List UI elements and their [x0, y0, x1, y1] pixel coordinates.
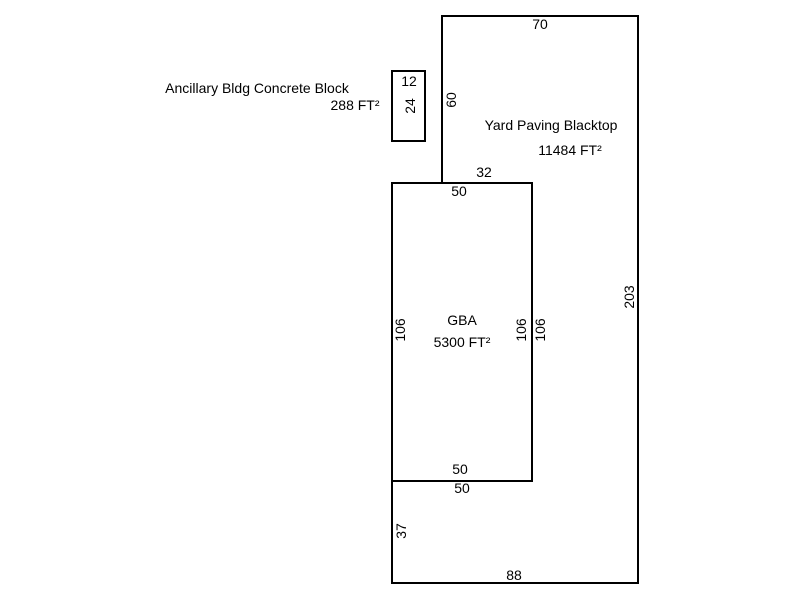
yard-area-label: 11484 FT² — [538, 143, 602, 157]
gba-outline — [392, 183, 532, 481]
sketch-canvas: Ancillary Bldg Concrete Block 288 FT² 12… — [0, 0, 800, 600]
gba-right-dim-label: 106 — [514, 318, 528, 341]
yard-top-dim-label: 70 — [532, 17, 548, 31]
yard-lower-left-dim-label: 37 — [394, 523, 408, 539]
yard-notch-top-dim-label: 32 — [476, 165, 492, 179]
gba-top-dim-label: 50 — [451, 184, 467, 198]
yard-notch-bottom-dim-label: 50 — [454, 481, 470, 495]
yard-inner-right-dim-label: 106 — [533, 318, 547, 341]
yard-bottom-dim-label: 88 — [506, 568, 522, 582]
ancillary-height-dim-label: 24 — [403, 98, 417, 114]
gba-name-label: GBA — [447, 313, 477, 327]
gba-left-dim-label: 106 — [393, 318, 407, 341]
sketch-drawing — [0, 0, 800, 600]
ancillary-name-label: Ancillary Bldg Concrete Block — [165, 81, 349, 95]
ancillary-width-dim-label: 12 — [401, 74, 417, 88]
ancillary-area-label: 288 FT² — [330, 98, 379, 112]
gba-area-label: 5300 FT² — [434, 335, 491, 349]
yard-right-dim-label: 203 — [622, 285, 636, 308]
yard-name-label: Yard Paving Blacktop — [485, 118, 618, 132]
gba-bottom-dim-label: 50 — [452, 462, 468, 476]
yard-upper-left-dim-label: 60 — [444, 92, 458, 108]
